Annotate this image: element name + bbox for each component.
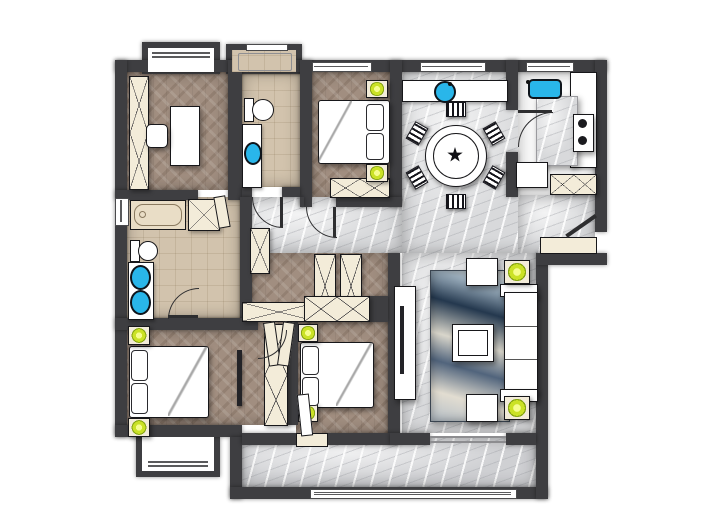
- bed-blanket-fold: [318, 100, 352, 162]
- nightstand-lamp: [366, 80, 388, 98]
- study-chair: [146, 124, 168, 148]
- dining-chair: [446, 194, 466, 209]
- wardrobe-x: [265, 375, 287, 425]
- bathroom-top-door-leaf: [280, 197, 283, 227]
- cabinet-x: [251, 229, 269, 273]
- sideboard-round-sink: [434, 81, 456, 103]
- hall-cabinet: [250, 228, 270, 274]
- window-line: [314, 494, 511, 495]
- living-balcony-slider-rail: [430, 441, 506, 443]
- study-bay-glazing-line: [152, 52, 210, 54]
- kitchen-sink: [528, 79, 562, 99]
- cabinet-x: [551, 175, 574, 194]
- bay-glazing-line: [148, 461, 208, 463]
- dining-chair: [446, 102, 466, 117]
- kitchen-cabinet: [516, 162, 548, 188]
- bathroom-top-sink: [244, 142, 262, 165]
- bay-glazing-line: [148, 465, 208, 467]
- pillow: [302, 346, 319, 375]
- nightstand-lamp: [366, 164, 388, 182]
- wall-bedroom-top-bottom-b: [336, 197, 402, 207]
- floor-plan: [0, 0, 704, 529]
- cabinet-x: [574, 175, 597, 194]
- wall-balcony-top-a: [242, 433, 296, 445]
- coffee-table: [452, 324, 494, 362]
- wall-bathroom-bedroom-top: [300, 60, 312, 207]
- faucet-dot: [448, 82, 452, 86]
- wall-study-bathroom: [228, 60, 242, 200]
- pillow: [366, 104, 384, 131]
- study-bay-glazing-line: [152, 56, 210, 58]
- shower-window: [246, 44, 288, 51]
- kitchen-window: [526, 62, 574, 72]
- wall-balcony-top-d: [506, 433, 536, 445]
- wall-entry-stoop: [536, 253, 607, 265]
- bathtub-drain: [139, 211, 146, 218]
- closet-x: [305, 297, 337, 321]
- faucet-dot: [526, 80, 530, 84]
- sofa-cushion-line: [505, 359, 537, 360]
- tv: [400, 306, 404, 374]
- shoe-cabinet: [550, 174, 597, 195]
- shower-tray: [238, 53, 292, 71]
- wall-bathroom-top-bottom-b: [282, 187, 300, 197]
- sofa: [504, 292, 538, 394]
- burner: [578, 136, 587, 145]
- armchair: [466, 258, 498, 286]
- living-balcony-slider-rail: [430, 436, 506, 438]
- vanity-sink: [130, 290, 151, 315]
- window-line: [528, 66, 570, 68]
- sofa-cushion-line: [505, 326, 537, 327]
- toilet-bowl: [138, 241, 158, 261]
- bathroom-left-door-leaf: [168, 315, 198, 318]
- bedroom-middle-closet: [304, 296, 370, 322]
- side-table-lamp: [504, 396, 530, 420]
- study-desk: [170, 106, 200, 166]
- wardrobe-x: [130, 77, 148, 133]
- pillow: [366, 133, 384, 160]
- window-line: [120, 200, 122, 222]
- burner: [578, 119, 587, 128]
- kitchen-door-leaf: [518, 110, 552, 113]
- coffee-table-inner: [458, 330, 488, 356]
- tv-console: [394, 286, 416, 400]
- pillow: [131, 383, 148, 414]
- window-line: [314, 492, 511, 493]
- wall-balcony-top-b: [326, 433, 390, 445]
- wall-bedroom-top-bottom-a: [300, 197, 304, 207]
- bed-blanket-fold: [168, 346, 207, 416]
- dining-window: [420, 62, 486, 72]
- vanity-sink: [130, 265, 151, 290]
- pillow: [131, 350, 148, 381]
- bathroom-left-window: [115, 198, 129, 226]
- wall-closet-stub: [368, 296, 388, 322]
- bed-blanket-fold: [336, 342, 372, 406]
- side-table-lamp: [504, 260, 530, 284]
- wall-bathroom-top-bottom-a: [242, 187, 252, 197]
- wall-bedroom-top-dining: [390, 60, 402, 207]
- wall-tv: [237, 350, 242, 406]
- nightstand-lamp: [128, 326, 150, 345]
- bedroom-top-door-leaf: [333, 207, 336, 237]
- toilet-bowl: [252, 99, 274, 121]
- bedroom-top-window: [312, 62, 372, 72]
- armchair: [466, 394, 498, 422]
- window-line: [314, 66, 368, 68]
- wall-left: [115, 60, 127, 437]
- nightstand-lamp: [298, 324, 318, 342]
- nightstand-lamp: [128, 418, 150, 437]
- entry-doormat: [540, 237, 597, 254]
- window-line: [422, 66, 482, 68]
- wardrobe-x: [331, 179, 360, 197]
- closet-x: [337, 297, 369, 321]
- wall-balcony-top-c: [390, 433, 430, 445]
